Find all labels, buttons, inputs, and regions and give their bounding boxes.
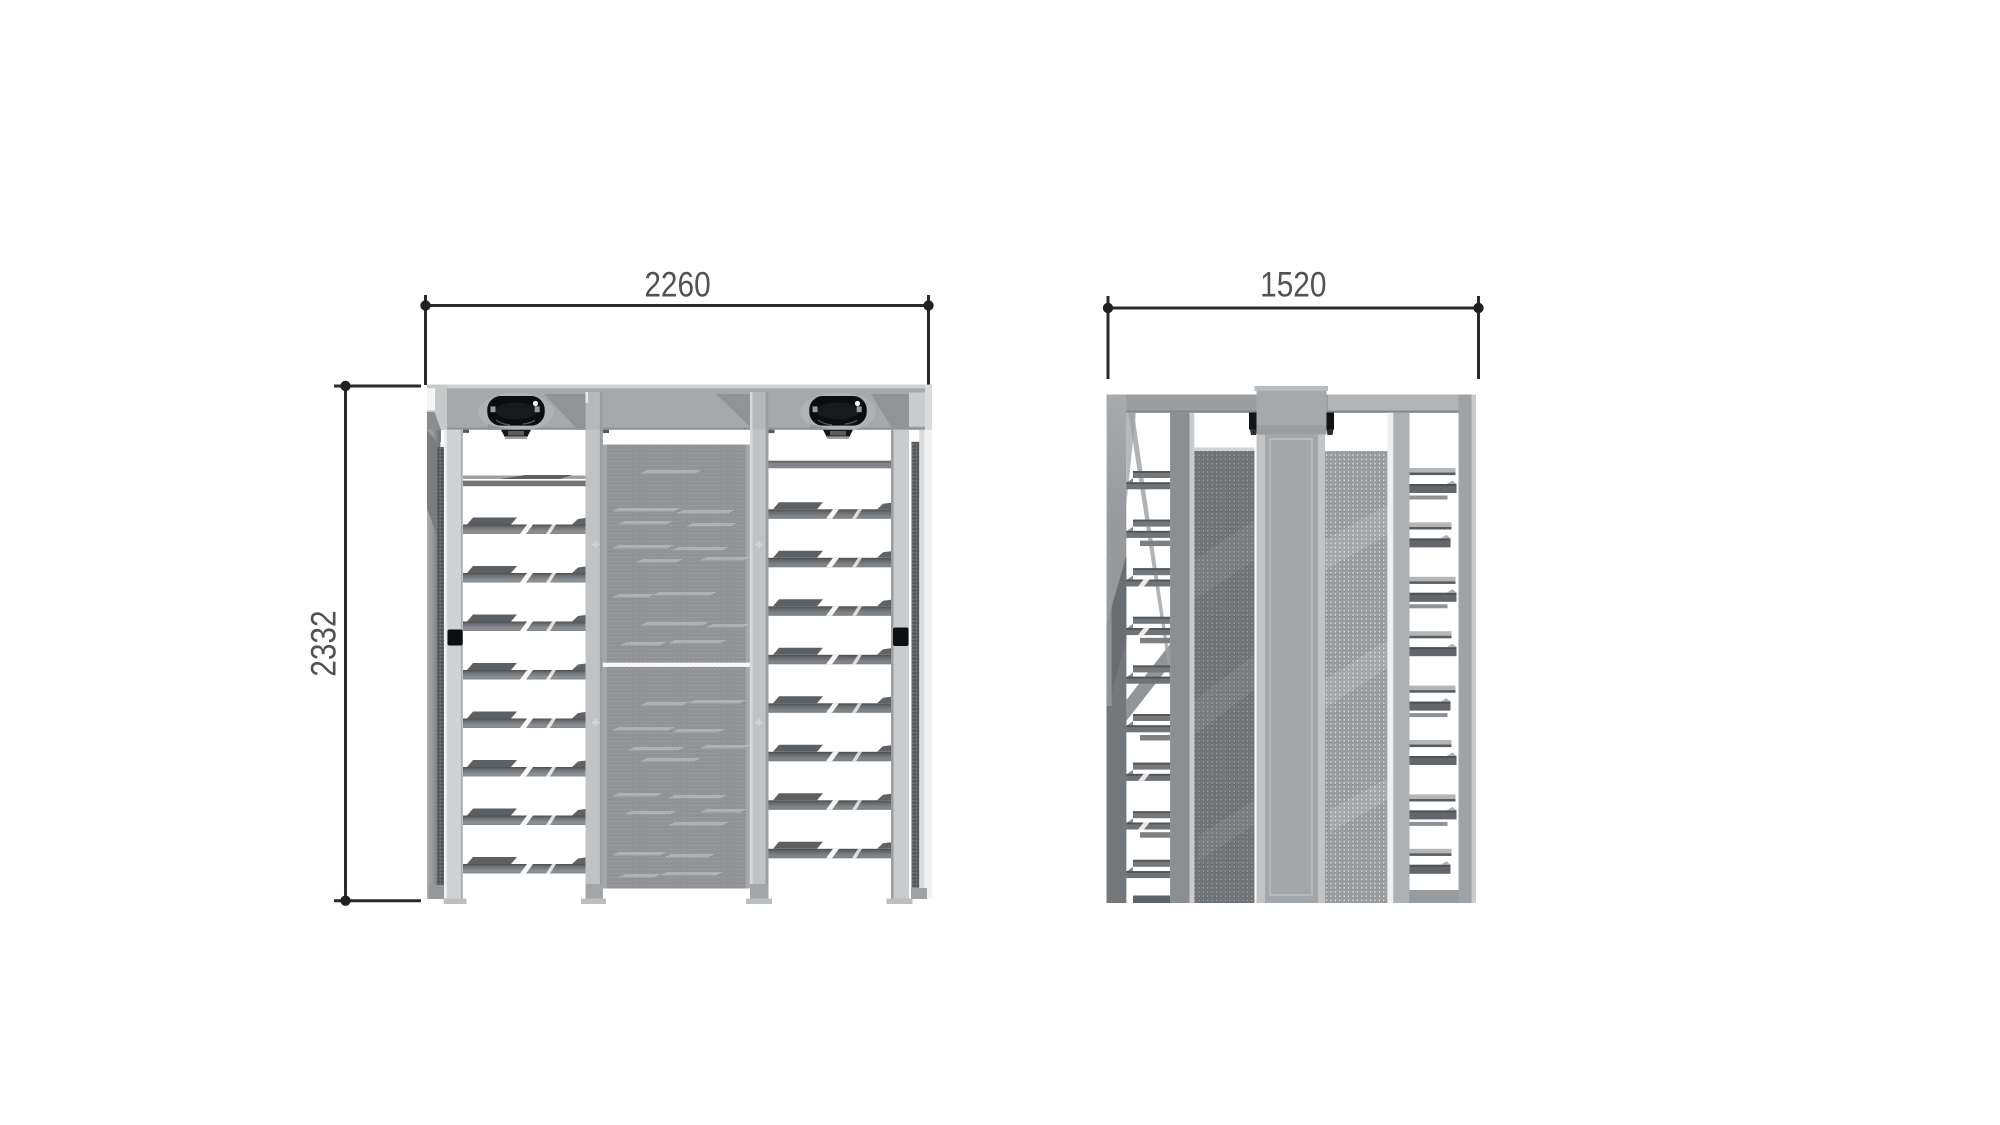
svg-text:1520: 1520: [1260, 264, 1326, 304]
svg-text:2332: 2332: [303, 610, 343, 676]
svg-text:2260: 2260: [644, 264, 710, 304]
